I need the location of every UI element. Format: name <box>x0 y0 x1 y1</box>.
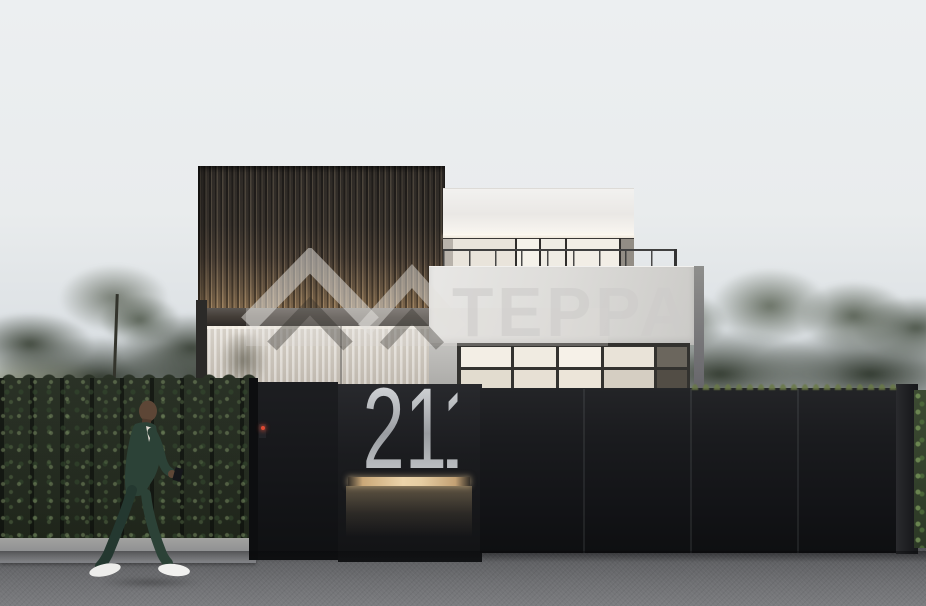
grass-tufts <box>690 377 898 390</box>
window-pane <box>657 370 686 389</box>
gate-led-glow <box>346 486 472 546</box>
architectural-render-scene: TEPPA 211 <box>0 0 926 606</box>
gate-panel-seam <box>797 389 799 553</box>
pedestrian <box>88 398 208 588</box>
sliding-gate <box>480 388 898 553</box>
pedestrian-head <box>139 401 157 422</box>
phone <box>172 467 183 482</box>
penthouse-facade <box>443 188 634 235</box>
watermark-text: TEPPA <box>452 273 692 351</box>
window-pane <box>604 370 654 389</box>
intercom-red-light <box>261 426 265 430</box>
pedestrian-front-leg <box>146 494 168 563</box>
pedestrian-back-leg <box>100 490 132 566</box>
gate-led-strip <box>348 477 470 486</box>
pedestrian-gate <box>258 382 338 560</box>
house-number: 211 <box>362 380 457 478</box>
gate-panel-seam <box>583 389 585 553</box>
window-pane <box>514 370 556 389</box>
intercom-icon <box>259 424 266 438</box>
gate-post <box>249 378 258 560</box>
window-pane <box>559 370 601 389</box>
pedestrian-front-shoe <box>157 562 190 577</box>
gate-panel-seam <box>690 389 692 553</box>
right-edge-plants <box>914 390 926 548</box>
watermark: TEPPA <box>238 248 708 358</box>
